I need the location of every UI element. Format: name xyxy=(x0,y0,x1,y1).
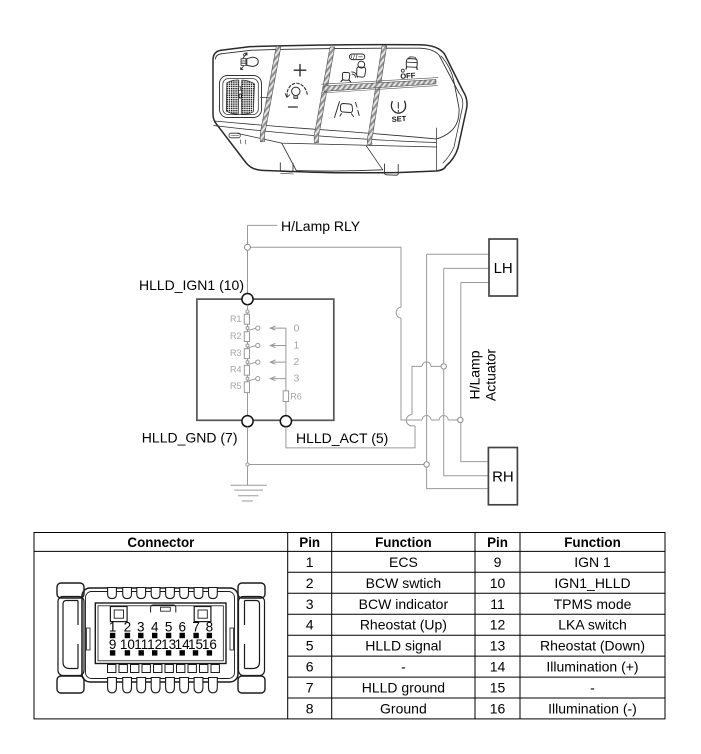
svg-text:1: 1 xyxy=(238,86,242,93)
svg-text:10: 10 xyxy=(490,575,506,591)
svg-text:6: 6 xyxy=(178,620,186,635)
svg-text:11: 11 xyxy=(490,596,505,612)
svg-text:R2: R2 xyxy=(230,331,242,341)
svg-text:2: 2 xyxy=(124,620,132,635)
svg-text:R1: R1 xyxy=(230,314,242,324)
svg-text:15: 15 xyxy=(188,637,203,652)
svg-text:R6: R6 xyxy=(290,392,302,402)
svg-text:SET: SET xyxy=(391,114,407,124)
svg-text:-: - xyxy=(401,659,406,675)
svg-text:OFF: OFF xyxy=(400,71,416,81)
svg-text:11: 11 xyxy=(134,637,148,652)
svg-text:LKA switch: LKA switch xyxy=(558,617,626,633)
svg-text:BCW swtich: BCW swtich xyxy=(366,575,441,591)
svg-text:1: 1 xyxy=(306,554,314,570)
svg-text:13: 13 xyxy=(490,638,506,654)
svg-text:Connector: Connector xyxy=(127,535,195,550)
svg-text:3: 3 xyxy=(306,596,314,612)
svg-text:4: 4 xyxy=(306,617,314,633)
svg-text:H/Lamp: H/Lamp xyxy=(467,350,483,399)
svg-text:Pin: Pin xyxy=(487,535,508,550)
svg-text:Pin: Pin xyxy=(299,535,320,550)
svg-text:14: 14 xyxy=(490,659,506,675)
svg-text:9: 9 xyxy=(109,637,117,652)
svg-text:Rheostat (Up): Rheostat (Up) xyxy=(360,617,447,633)
svg-text:IGN1_HLLD: IGN1_HLLD xyxy=(554,575,630,591)
svg-text:R4: R4 xyxy=(230,365,242,375)
svg-text:7: 7 xyxy=(306,680,314,696)
svg-text:9: 9 xyxy=(494,554,502,570)
svg-text:Ground: Ground xyxy=(380,701,427,717)
svg-text:16: 16 xyxy=(490,701,506,717)
svg-text:HLLD signal: HLLD signal xyxy=(365,638,441,654)
svg-text:8: 8 xyxy=(206,620,214,635)
svg-text:HLLD_ACT (5): HLLD_ACT (5) xyxy=(296,430,388,446)
svg-text:R5: R5 xyxy=(230,381,242,391)
svg-text:HLLD_IGN1 (10): HLLD_IGN1 (10) xyxy=(139,277,244,293)
svg-text:3: 3 xyxy=(294,373,300,385)
svg-text:IGN 1: IGN 1 xyxy=(574,554,611,570)
svg-text:3: 3 xyxy=(137,620,145,635)
svg-text:Illumination (-): Illumination (-) xyxy=(548,701,637,717)
svg-text:4: 4 xyxy=(151,620,159,635)
svg-text:16: 16 xyxy=(202,637,217,652)
svg-text:2: 2 xyxy=(294,356,300,368)
svg-text:1: 1 xyxy=(294,339,300,351)
svg-text:7: 7 xyxy=(192,620,200,635)
svg-text:H/Lamp RLY: H/Lamp RLY xyxy=(281,218,361,234)
svg-text:2: 2 xyxy=(306,575,314,591)
svg-text:Function: Function xyxy=(375,535,432,550)
svg-text:12: 12 xyxy=(490,617,506,633)
svg-text:Function: Function xyxy=(564,535,621,550)
svg-text:Rheostat (Down): Rheostat (Down) xyxy=(540,638,645,654)
svg-text:BCW indicator: BCW indicator xyxy=(359,596,449,612)
svg-text:8: 8 xyxy=(306,701,314,717)
svg-text:-: - xyxy=(590,680,595,696)
svg-text:Actuator: Actuator xyxy=(482,349,498,401)
svg-text:0: 0 xyxy=(294,323,300,335)
svg-text:HLLD ground: HLLD ground xyxy=(362,680,445,696)
svg-text:15: 15 xyxy=(490,680,506,696)
svg-text:R3: R3 xyxy=(230,348,242,358)
svg-text:5: 5 xyxy=(306,638,314,654)
svg-text:1: 1 xyxy=(109,620,117,635)
svg-text:10: 10 xyxy=(120,637,135,652)
svg-text:TPMS mode: TPMS mode xyxy=(554,596,632,612)
svg-text:RH: RH xyxy=(492,469,514,486)
svg-text:6: 6 xyxy=(306,659,314,675)
svg-text:12: 12 xyxy=(147,637,162,652)
svg-text:HLLD_GND (7): HLLD_GND (7) xyxy=(142,430,238,446)
svg-text:5: 5 xyxy=(165,620,173,635)
svg-text:Illumination (+): Illumination (+) xyxy=(546,659,638,675)
svg-text:0: 0 xyxy=(238,94,242,101)
svg-text:ECS: ECS xyxy=(389,554,418,570)
svg-text:LH: LH xyxy=(494,260,513,277)
